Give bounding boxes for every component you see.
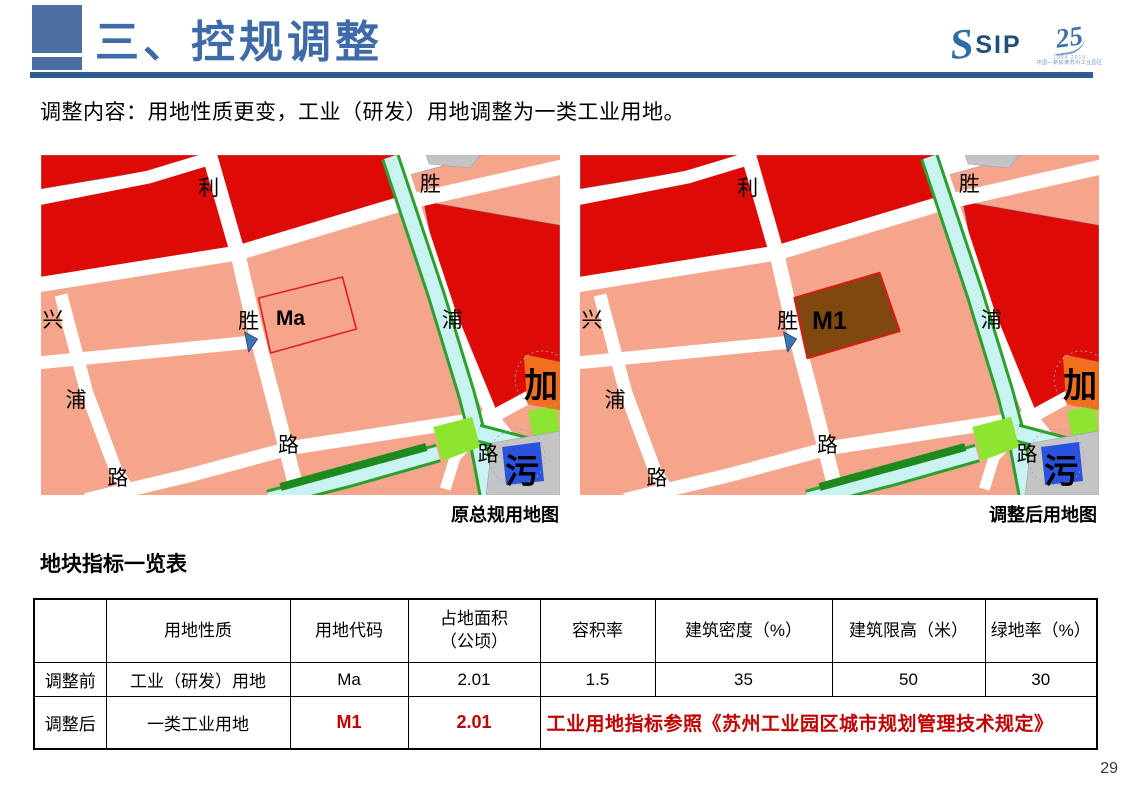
map-label: 浦 <box>442 309 463 332</box>
table-header-cell: 建筑限高（米） <box>832 599 985 663</box>
map-label: 利 <box>198 177 219 200</box>
adjustment-description: 调整内容：用地性质更变，工业（研发）用地调整为一类工业用地。 <box>40 96 685 126</box>
map-label: 胜 <box>420 173 441 196</box>
table-header-cell: 容积率 <box>540 599 655 663</box>
map-caption-before: 原总规用地图 <box>41 501 559 527</box>
map-label: 路 <box>817 434 838 457</box>
table-cell: 2.01 <box>408 697 540 750</box>
sip-logo-s-icon: S <box>948 24 975 66</box>
map-label: 兴 <box>582 309 603 332</box>
table-row: 调整前工业（研发）用地Ma2.011.5355030 <box>34 663 1097 697</box>
map-label: 胜 <box>238 310 259 333</box>
table-header-cell: 占地面积 （公顷） <box>408 599 540 663</box>
table-cell: 2.01 <box>408 663 540 697</box>
map-canvas: 利胜兴胜浦浦路路路加污Ma <box>41 155 560 495</box>
table-cell: 50 <box>832 663 985 697</box>
header-rule <box>30 72 1093 78</box>
spec-table: 用地性质用地代码占地面积 （公顷）容积率建筑密度（%）建筑限高（米）绿地率（%）… <box>33 598 1098 750</box>
logo-tagline: 中国—新加坡苏州工业园区 <box>1037 61 1103 66</box>
page-number: 29 <box>1088 760 1118 778</box>
map-label: 污 <box>505 453 539 491</box>
row-label-cell: 调整前 <box>34 663 106 697</box>
map-caption-after: 调整后用地图 <box>580 501 1097 527</box>
adjustment-note: 工业用地指标参照《苏州工业园区城市规划管理技术规定》 <box>540 697 1097 750</box>
sip-logo-text: SIP <box>975 31 1021 60</box>
map-label: 浦 <box>65 389 86 412</box>
table-cell: 35 <box>655 663 832 697</box>
map-label: 胜 <box>777 310 798 333</box>
map-label: 路 <box>646 467 667 490</box>
table-header-cell: 用地代码 <box>290 599 408 663</box>
map-label: 利 <box>737 177 758 200</box>
map-label: 兴 <box>43 309 64 332</box>
table-cell: 30 <box>985 663 1097 697</box>
land-use-map-before: 利胜兴胜浦浦路路路加污Ma <box>41 155 560 495</box>
anniversary-25-icon: 25 <box>1051 22 1088 56</box>
table-cell: 工业（研发）用地 <box>106 663 290 697</box>
parcel-code-label: M1 <box>812 307 847 335</box>
map-label: 污 <box>1044 453 1078 491</box>
plot-indicator-table: 用地性质用地代码占地面积 （公顷）容积率建筑密度（%）建筑限高（米）绿地率（%）… <box>33 598 1098 750</box>
map-label: 加 <box>1063 367 1097 405</box>
table-cell: 一类工业用地 <box>106 697 290 750</box>
table-header-cell: 用地性质 <box>106 599 290 663</box>
table-header-cell: 绿地率（%） <box>985 599 1097 663</box>
table-header-cell <box>34 599 106 663</box>
map-label: 路 <box>478 443 499 466</box>
map-label: 路 <box>107 467 128 490</box>
map-label: 路 <box>278 434 299 457</box>
land-use-map-after: 利胜兴胜浦浦路路路加污M1 <box>580 155 1099 495</box>
table-header-cell: 建筑密度（%） <box>655 599 832 663</box>
page-title: 三、控规调整 <box>95 6 383 70</box>
map-label: 浦 <box>981 309 1002 332</box>
sip-logo: S SIP 25 1994-2019 中国—新加坡苏州工业园区 <box>950 20 1100 70</box>
map-canvas: 利胜兴胜浦浦路路路加污M1 <box>580 155 1099 495</box>
table-title: 地块指标一览表 <box>40 548 187 578</box>
table-cell: 1.5 <box>540 663 655 697</box>
title-accent-square <box>32 5 82 53</box>
row-label-cell: 调整后 <box>34 697 106 750</box>
table-cell: Ma <box>290 663 408 697</box>
title-accent-bar <box>32 57 82 70</box>
map-label: 路 <box>1017 443 1038 466</box>
map-label: 胜 <box>959 173 980 196</box>
map-label: 浦 <box>604 389 625 412</box>
table-row: 调整后一类工业用地M12.01工业用地指标参照《苏州工业园区城市规划管理技术规定… <box>34 697 1097 750</box>
parcel-code-label: Ma <box>276 307 305 330</box>
map-label: 加 <box>524 367 558 405</box>
table-cell: M1 <box>290 697 408 750</box>
